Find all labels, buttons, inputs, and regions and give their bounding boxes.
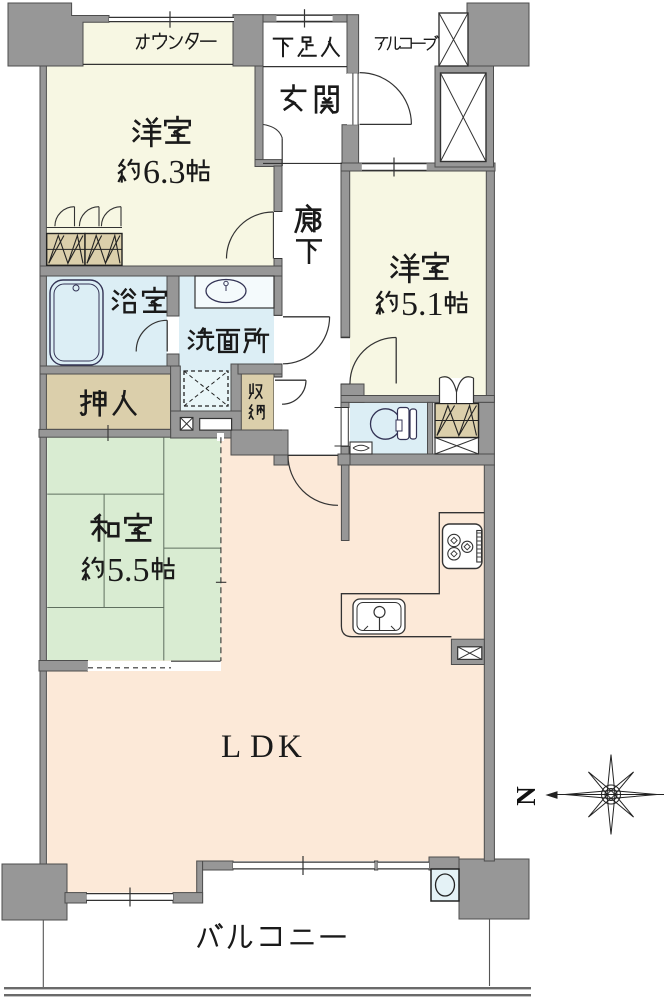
svg-text:5.5: 5.5 [107, 552, 150, 589]
svg-text:L: L [221, 729, 241, 765]
svg-text:5.1: 5.1 [401, 286, 444, 323]
svg-text:D: D [250, 729, 274, 765]
svg-text:6.3: 6.3 [143, 154, 186, 191]
svg-text:K: K [278, 729, 302, 765]
svg-text:N: N [511, 786, 541, 806]
